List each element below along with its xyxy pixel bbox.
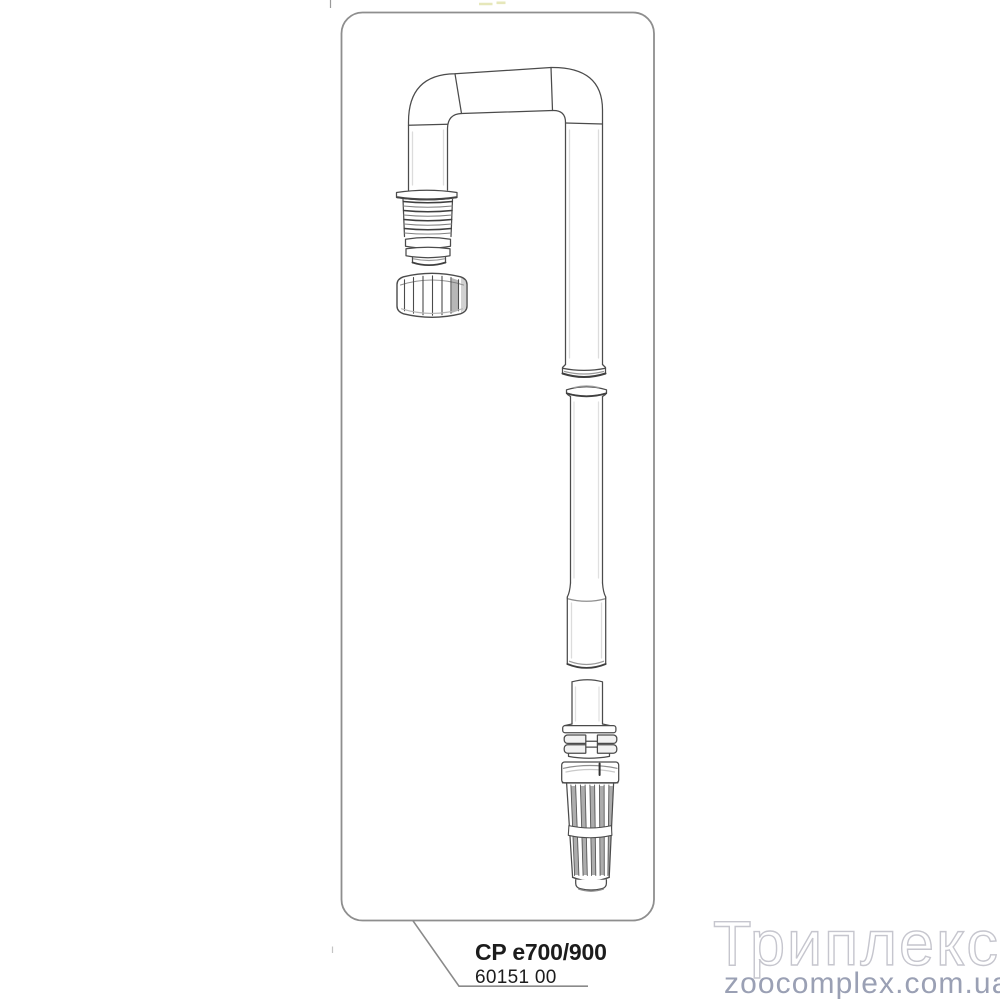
product-name: CP e700/900 bbox=[475, 940, 607, 965]
quick-release-clip-connector bbox=[563, 724, 617, 758]
union-nut bbox=[397, 273, 467, 317]
product-code: 60151 00 bbox=[475, 968, 607, 989]
watermark-site: zoocomplex.com.ua bbox=[724, 967, 1000, 1000]
product-illustration-page: CP e700/900 60151 00 Триплекс zoocomplex… bbox=[0, 0, 1000, 1000]
product-frame bbox=[342, 13, 655, 921]
product-label: CP e700/900 60151 00 bbox=[475, 940, 607, 989]
scan-artifact-dash bbox=[479, 3, 506, 4]
product-diagram bbox=[0, 0, 1000, 1000]
